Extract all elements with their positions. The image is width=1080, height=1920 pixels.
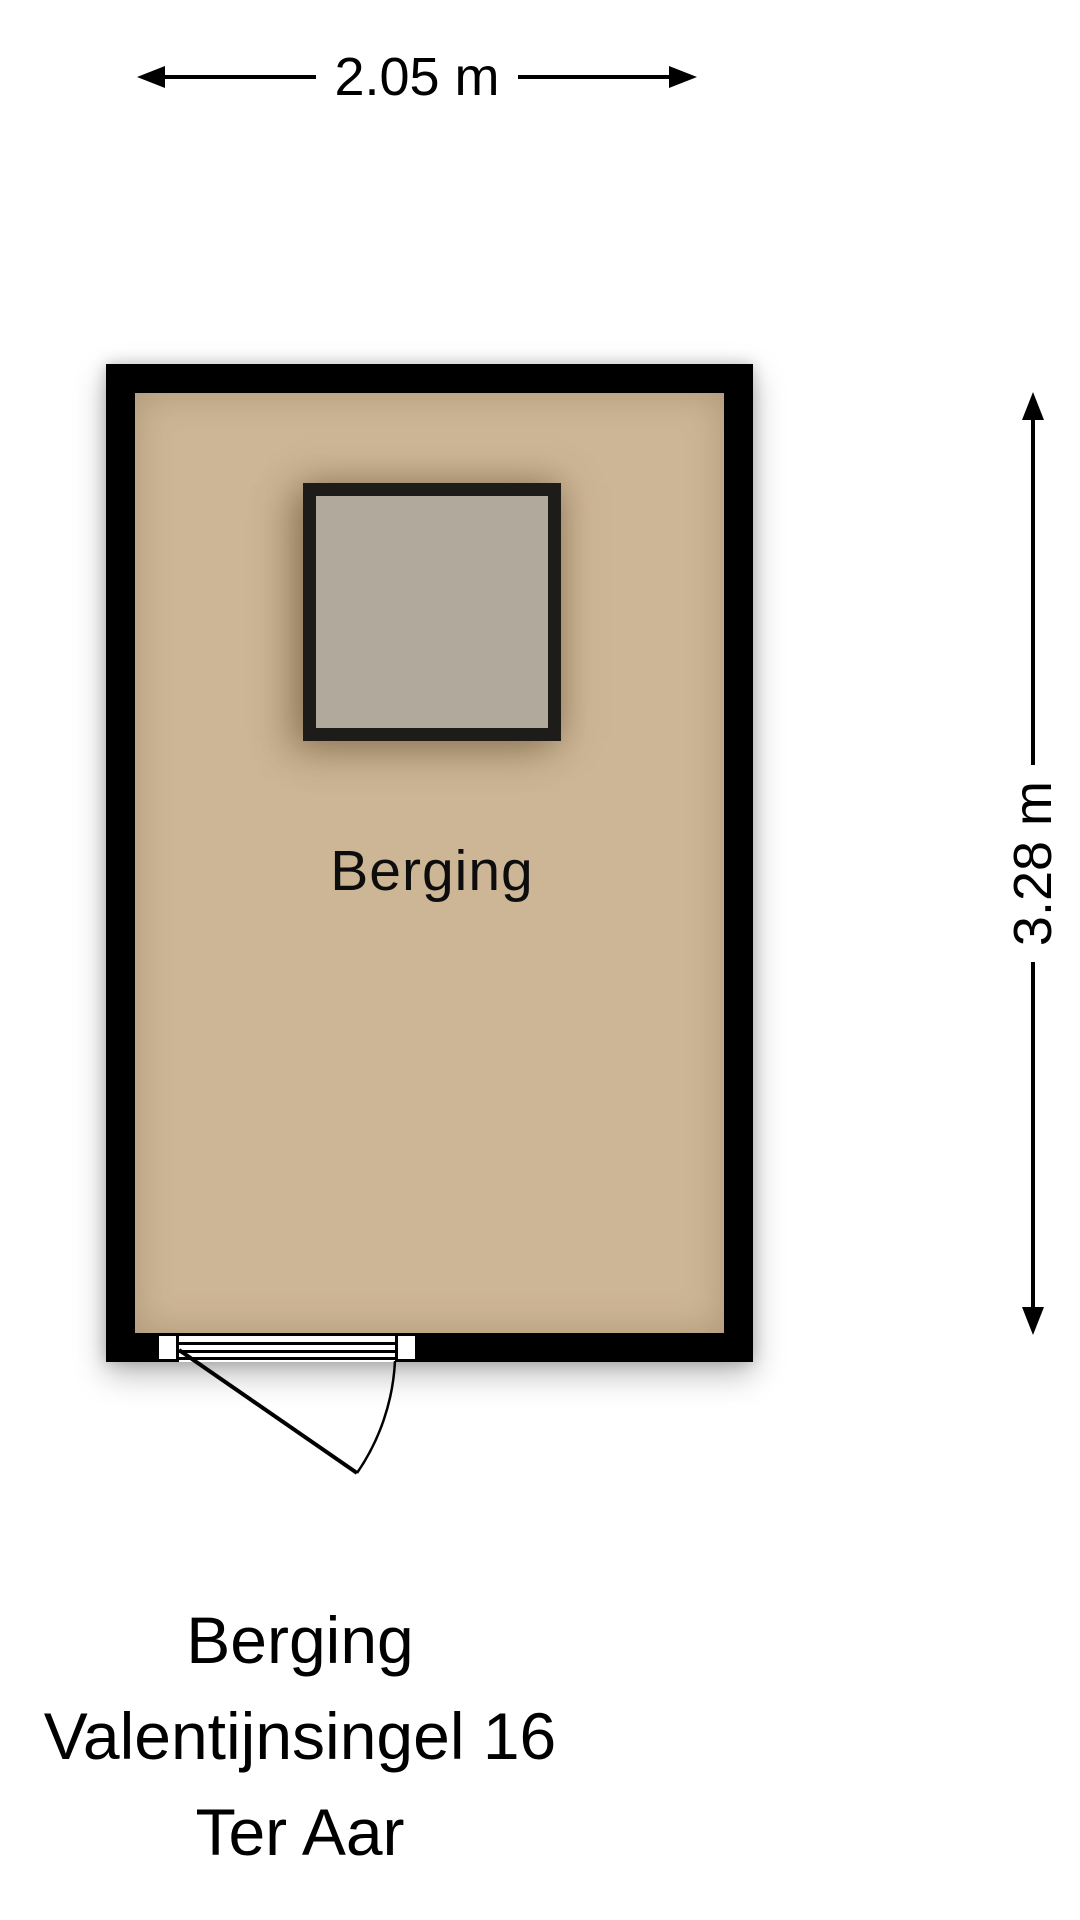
dimension-line xyxy=(1031,962,1035,1307)
door-leaf-line xyxy=(179,1350,357,1473)
threshold-line xyxy=(179,1350,395,1353)
skylight-square xyxy=(303,483,561,741)
floorplan-page: 2.05 m Berging 3.28 m Berging V xyxy=(0,0,1080,1920)
dimension-line xyxy=(518,75,669,79)
caption-city: Ter Aar xyxy=(0,1784,600,1880)
door-jamb-left xyxy=(156,1333,179,1362)
caption: Berging Valentijnsingel 16 Ter Aar xyxy=(0,1592,600,1880)
caption-room-name: Berging xyxy=(0,1592,600,1688)
room-floor: Berging xyxy=(135,393,724,1333)
arrow-up-icon xyxy=(1022,392,1044,420)
room-outline: Berging xyxy=(106,364,753,1362)
arrow-down-icon xyxy=(1022,1307,1044,1335)
dimension-line xyxy=(1031,420,1035,765)
door-jamb-right xyxy=(395,1333,418,1362)
height-dimension: 3.28 m xyxy=(1001,392,1065,1335)
caption-street-address: Valentijnsingel 16 xyxy=(0,1688,600,1784)
arrow-left-icon xyxy=(137,66,165,88)
door-threshold xyxy=(179,1333,395,1362)
threshold-line xyxy=(179,1357,395,1360)
door-swing-arc xyxy=(357,1361,395,1473)
room-label: Berging xyxy=(232,839,632,903)
arrow-right-icon xyxy=(669,66,697,88)
threshold-line xyxy=(179,1333,395,1336)
height-dimension-label: 3.28 m xyxy=(1002,765,1064,962)
dimension-line xyxy=(165,75,316,79)
width-dimension: 2.05 m xyxy=(137,45,697,109)
threshold-line xyxy=(179,1342,395,1345)
width-dimension-label: 2.05 m xyxy=(316,45,517,109)
